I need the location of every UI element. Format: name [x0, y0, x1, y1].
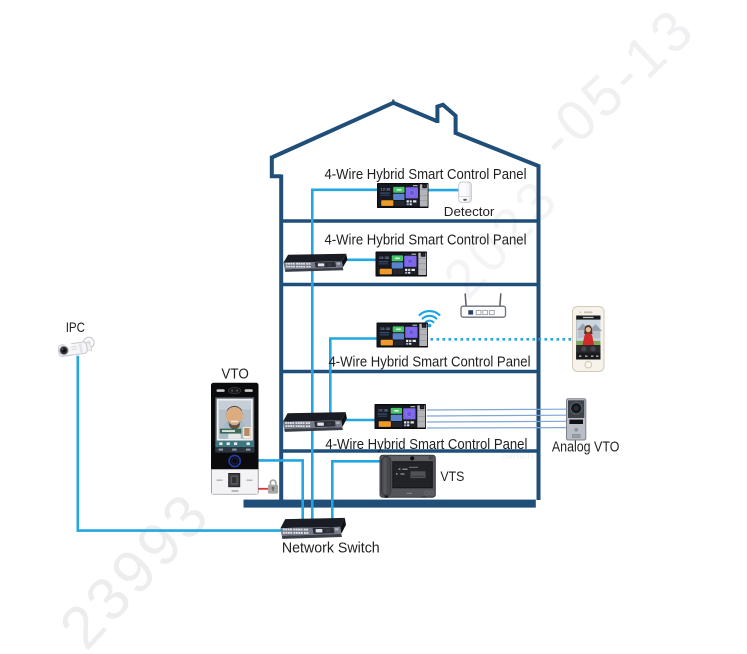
svg-text:IPC: IPC [66, 319, 85, 335]
svg-text:Network Switch: Network Switch [282, 540, 380, 557]
svg-text:4-Wire Hybrid Smart Control Pa: 4-Wire Hybrid Smart Control Panel [329, 354, 531, 371]
svg-text:4-Wire Hybrid Smart Control Pa: 4-Wire Hybrid Smart Control Panel [325, 231, 527, 248]
svg-text:4-Wire Hybrid Smart Control Pa: 4-Wire Hybrid Smart Control Panel [325, 436, 527, 453]
svg-text:VTO: VTO [221, 365, 248, 382]
svg-text:4-Wire Hybrid Smart Control Pa: 4-Wire Hybrid Smart Control Panel [325, 166, 527, 183]
svg-text:Analog VTO: Analog VTO [552, 439, 620, 456]
svg-text:-05-13: -05-13 [526, 0, 708, 171]
svg-text:Detector: Detector [444, 205, 495, 219]
svg-text:VTS: VTS [440, 468, 464, 484]
svg-text:23993: 23993 [47, 479, 223, 654]
